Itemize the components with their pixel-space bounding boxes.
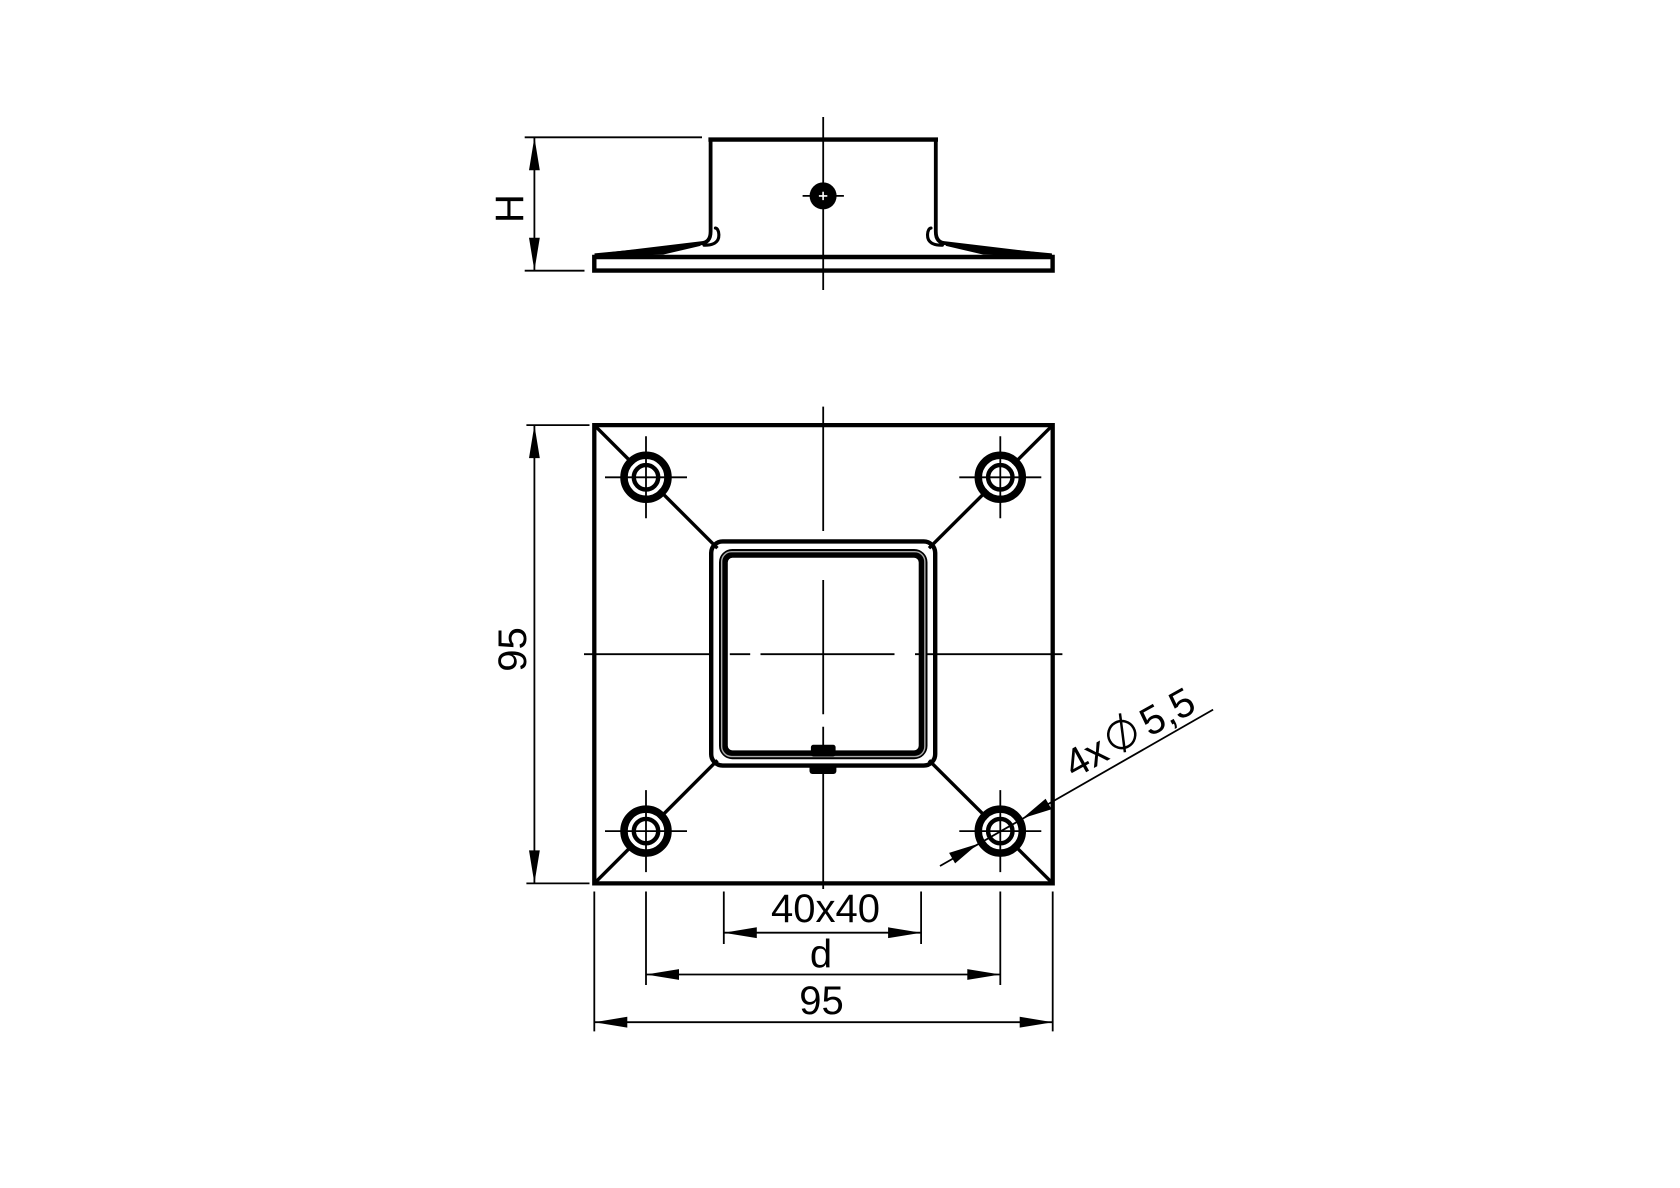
svg-text:40x40: 40x40	[771, 887, 880, 931]
svg-text:95: 95	[799, 979, 844, 1023]
svg-text:H: H	[488, 194, 532, 223]
svg-text:d: d	[810, 933, 832, 977]
svg-text:95: 95	[491, 627, 535, 672]
